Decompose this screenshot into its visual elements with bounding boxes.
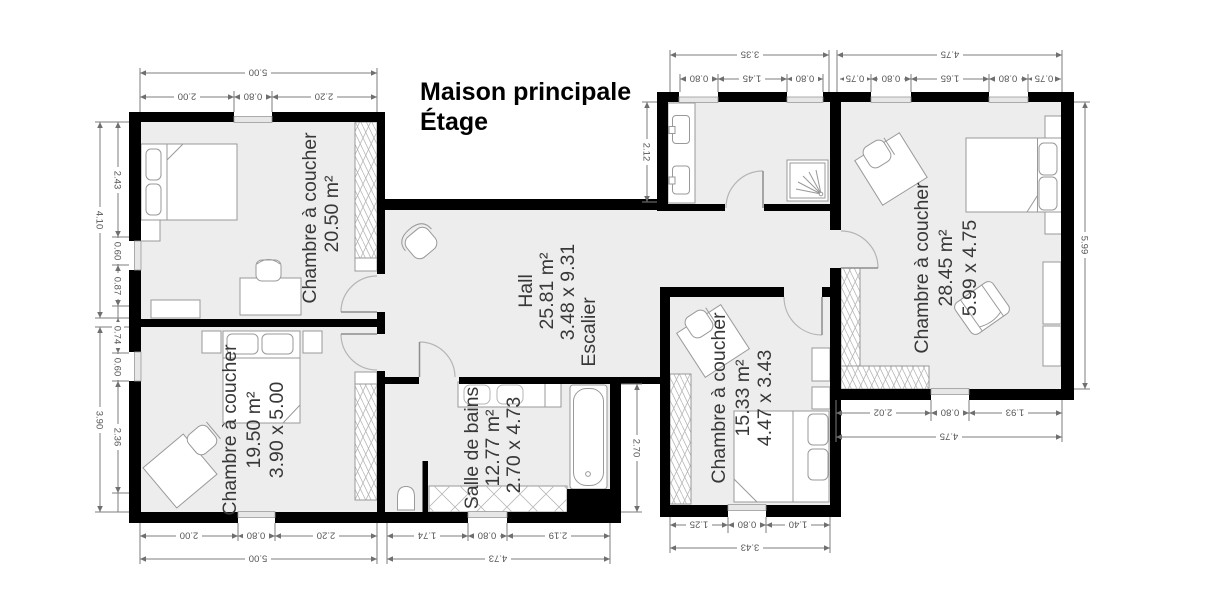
svg-text:2.00: 2.00 — [180, 530, 199, 541]
svg-text:3.35: 3.35 — [741, 49, 760, 60]
svg-text:0.80: 0.80 — [738, 519, 757, 530]
svg-text:0.80: 0.80 — [244, 91, 263, 102]
svg-text:1.93: 1.93 — [1006, 407, 1025, 418]
svg-text:Chambre à coucher: Chambre à coucher — [219, 344, 241, 516]
svg-text:Étage: Étage — [420, 107, 488, 136]
svg-text:0.74: 0.74 — [112, 326, 123, 345]
svg-text:1.45: 1.45 — [743, 73, 762, 84]
svg-text:0.80: 0.80 — [690, 73, 709, 84]
svg-text:2.00: 2.00 — [178, 91, 197, 102]
svg-text:4.75: 4.75 — [941, 49, 960, 60]
svg-text:2.20: 2.20 — [315, 91, 334, 102]
svg-text:12.77 m²: 12.77 m² — [482, 409, 504, 486]
svg-text:Chambre à coucher: Chambre à coucher — [708, 312, 730, 484]
svg-text:28.45 m²: 28.45 m² — [935, 229, 957, 306]
svg-text:2.02: 2.02 — [874, 407, 893, 418]
svg-text:2.19: 2.19 — [549, 530, 568, 541]
svg-text:4.47 x 3.43: 4.47 x 3.43 — [754, 350, 776, 447]
svg-text:19.50 m²: 19.50 m² — [243, 391, 265, 468]
svg-text:0.60: 0.60 — [112, 242, 123, 261]
svg-text:Chambre à coucher: Chambre à coucher — [299, 132, 321, 304]
svg-text:5.99 x 4.75: 5.99 x 4.75 — [959, 220, 981, 317]
svg-text:1.74: 1.74 — [418, 530, 437, 541]
svg-text:2.20: 2.20 — [317, 530, 336, 541]
svg-text:Chambre à coucher: Chambre à coucher — [911, 182, 933, 354]
svg-text:4.75: 4.75 — [940, 431, 959, 442]
svg-text:1.25: 1.25 — [690, 519, 709, 530]
svg-text:5.99: 5.99 — [1079, 236, 1090, 255]
svg-text:5.00: 5.00 — [249, 553, 268, 564]
svg-text:2.70: 2.70 — [631, 439, 642, 458]
svg-text:2.36: 2.36 — [112, 428, 123, 447]
svg-text:Escalier: Escalier — [578, 297, 600, 367]
svg-text:1.65: 1.65 — [941, 73, 960, 84]
svg-text:20.50 m²: 20.50 m² — [321, 175, 343, 252]
svg-text:2.12: 2.12 — [641, 143, 652, 162]
svg-text:3.43: 3.43 — [741, 542, 760, 553]
svg-text:0.80: 0.80 — [478, 530, 497, 541]
svg-text:0.80: 0.80 — [796, 73, 815, 84]
svg-text:4.10: 4.10 — [94, 211, 105, 230]
svg-text:0.75: 0.75 — [1035, 73, 1054, 84]
svg-text:4.73: 4.73 — [489, 553, 508, 564]
svg-text:1.40: 1.40 — [789, 519, 808, 530]
svg-text:0.80: 0.80 — [247, 530, 266, 541]
svg-text:0.75: 0.75 — [846, 73, 865, 84]
svg-text:Hall: Hall — [515, 274, 537, 308]
svg-text:5.00: 5.00 — [249, 67, 268, 78]
svg-text:0.87: 0.87 — [112, 277, 123, 296]
svg-text:0.80: 0.80 — [999, 73, 1018, 84]
svg-text:3.48 x 9.31: 3.48 x 9.31 — [557, 244, 579, 341]
svg-text:0.80: 0.80 — [941, 407, 960, 418]
svg-text:Maison principale: Maison principale — [420, 78, 631, 106]
svg-text:3.90: 3.90 — [94, 411, 105, 430]
svg-text:2.70 x 4.73: 2.70 x 4.73 — [503, 397, 525, 494]
svg-text:25.81 m²: 25.81 m² — [536, 252, 558, 329]
svg-text:3.90 x 5.00: 3.90 x 5.00 — [266, 382, 288, 479]
svg-text:0.60: 0.60 — [112, 358, 123, 377]
svg-text:0.80: 0.80 — [882, 73, 901, 84]
svg-text:Salle de bains: Salle de bains — [461, 387, 483, 510]
svg-text:2.43: 2.43 — [112, 171, 123, 190]
svg-text:15.33 m²: 15.33 m² — [732, 359, 754, 436]
